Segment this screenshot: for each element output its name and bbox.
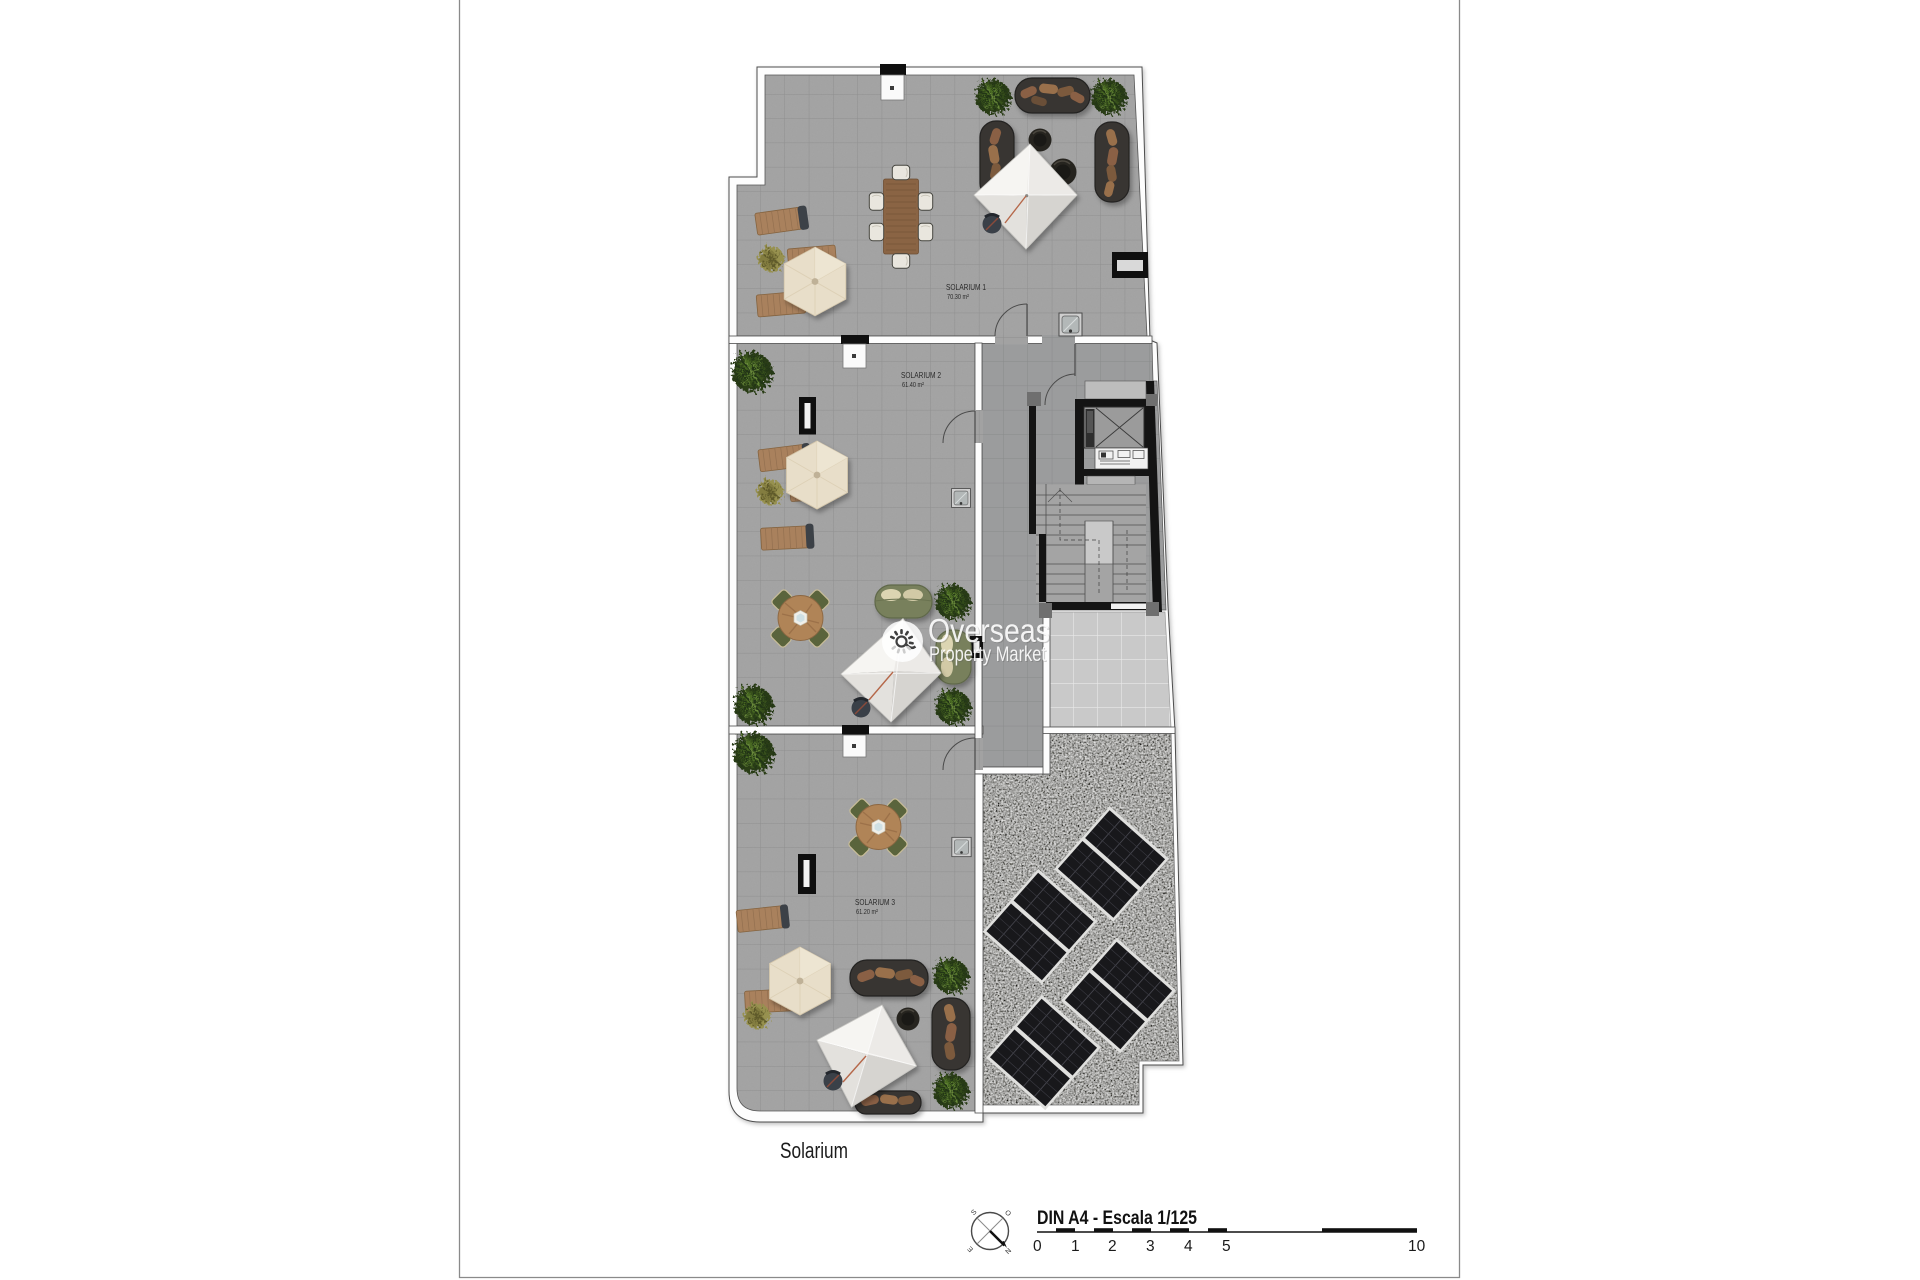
svg-text:Solarium: Solarium: [780, 1138, 848, 1163]
svg-text:3: 3: [1146, 1238, 1155, 1255]
svg-text:Property Market: Property Market: [929, 643, 1046, 666]
svg-text:SOLARIUM 1: SOLARIUM 1: [946, 283, 986, 292]
svg-text:0: 0: [1033, 1238, 1042, 1255]
svg-text:10: 10: [1408, 1238, 1426, 1255]
svg-text:61.20 m²: 61.20 m²: [856, 907, 878, 916]
svg-text:4: 4: [1184, 1238, 1193, 1255]
svg-text:61.40 m²: 61.40 m²: [902, 380, 924, 389]
svg-text:2: 2: [1108, 1238, 1117, 1255]
svg-text:1: 1: [1071, 1238, 1080, 1255]
svg-text:SOLARIUM 2: SOLARIUM 2: [901, 371, 941, 380]
svg-text:70.30 m²: 70.30 m²: [947, 292, 969, 301]
svg-text:DIN A4 - Escala 1/125: DIN A4 - Escala 1/125: [1037, 1208, 1197, 1229]
svg-text:5: 5: [1222, 1238, 1231, 1255]
svg-text:SOLARIUM 3: SOLARIUM 3: [855, 898, 895, 907]
